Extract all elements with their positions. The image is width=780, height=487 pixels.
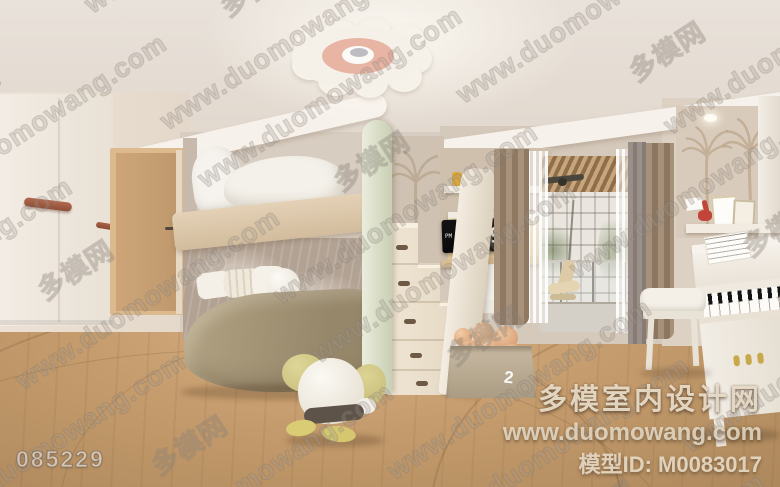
- flower-ceiling-lamp: [288, 22, 428, 92]
- wardrobe: [0, 94, 113, 326]
- railing-mullion: [592, 262, 594, 304]
- model-id: 模型ID: M0083017: [503, 452, 762, 477]
- watermark-cn-text: 多模网: [620, 11, 712, 89]
- piano-pedal: [757, 352, 764, 364]
- site-name: 多模室内设计网: [503, 384, 762, 417]
- panorama-room-photo: PM 9 49 2: [0, 0, 780, 487]
- site-caption-block: 多模室内设计网 www.duomowang.com 模型ID: M0083017: [503, 384, 762, 477]
- lounge-chair-base: [550, 294, 576, 300]
- ceiling-fan-hub: [558, 178, 567, 186]
- wardrobe-handle: [24, 197, 73, 212]
- drawer-handle-notch: [396, 245, 408, 250]
- watermark-url-text: www.duomowang.com: [0, 0, 63, 53]
- wardrobe-base-shadow: [0, 320, 113, 325]
- lamp-bird-ornament: [350, 48, 368, 57]
- sheet-stack: [685, 197, 703, 211]
- drawer-handle-notch: [416, 381, 428, 386]
- door: [116, 153, 176, 311]
- photo-id: 085229: [16, 446, 105, 473]
- recessed-spotlight: [704, 114, 717, 122]
- drawer-handle-notch: [404, 319, 416, 324]
- piano-pedal: [745, 354, 752, 366]
- clock-meridiem: PM: [445, 233, 452, 240]
- piano-pedal: [733, 355, 740, 367]
- drape-left: [494, 149, 529, 325]
- bench-shadow: [640, 368, 712, 378]
- drawer-handle-notch: [410, 353, 422, 358]
- drawer-handle-notch: [398, 281, 410, 286]
- site-url: www.duomowang.com: [503, 419, 762, 447]
- duck-plush-toy: [276, 340, 392, 448]
